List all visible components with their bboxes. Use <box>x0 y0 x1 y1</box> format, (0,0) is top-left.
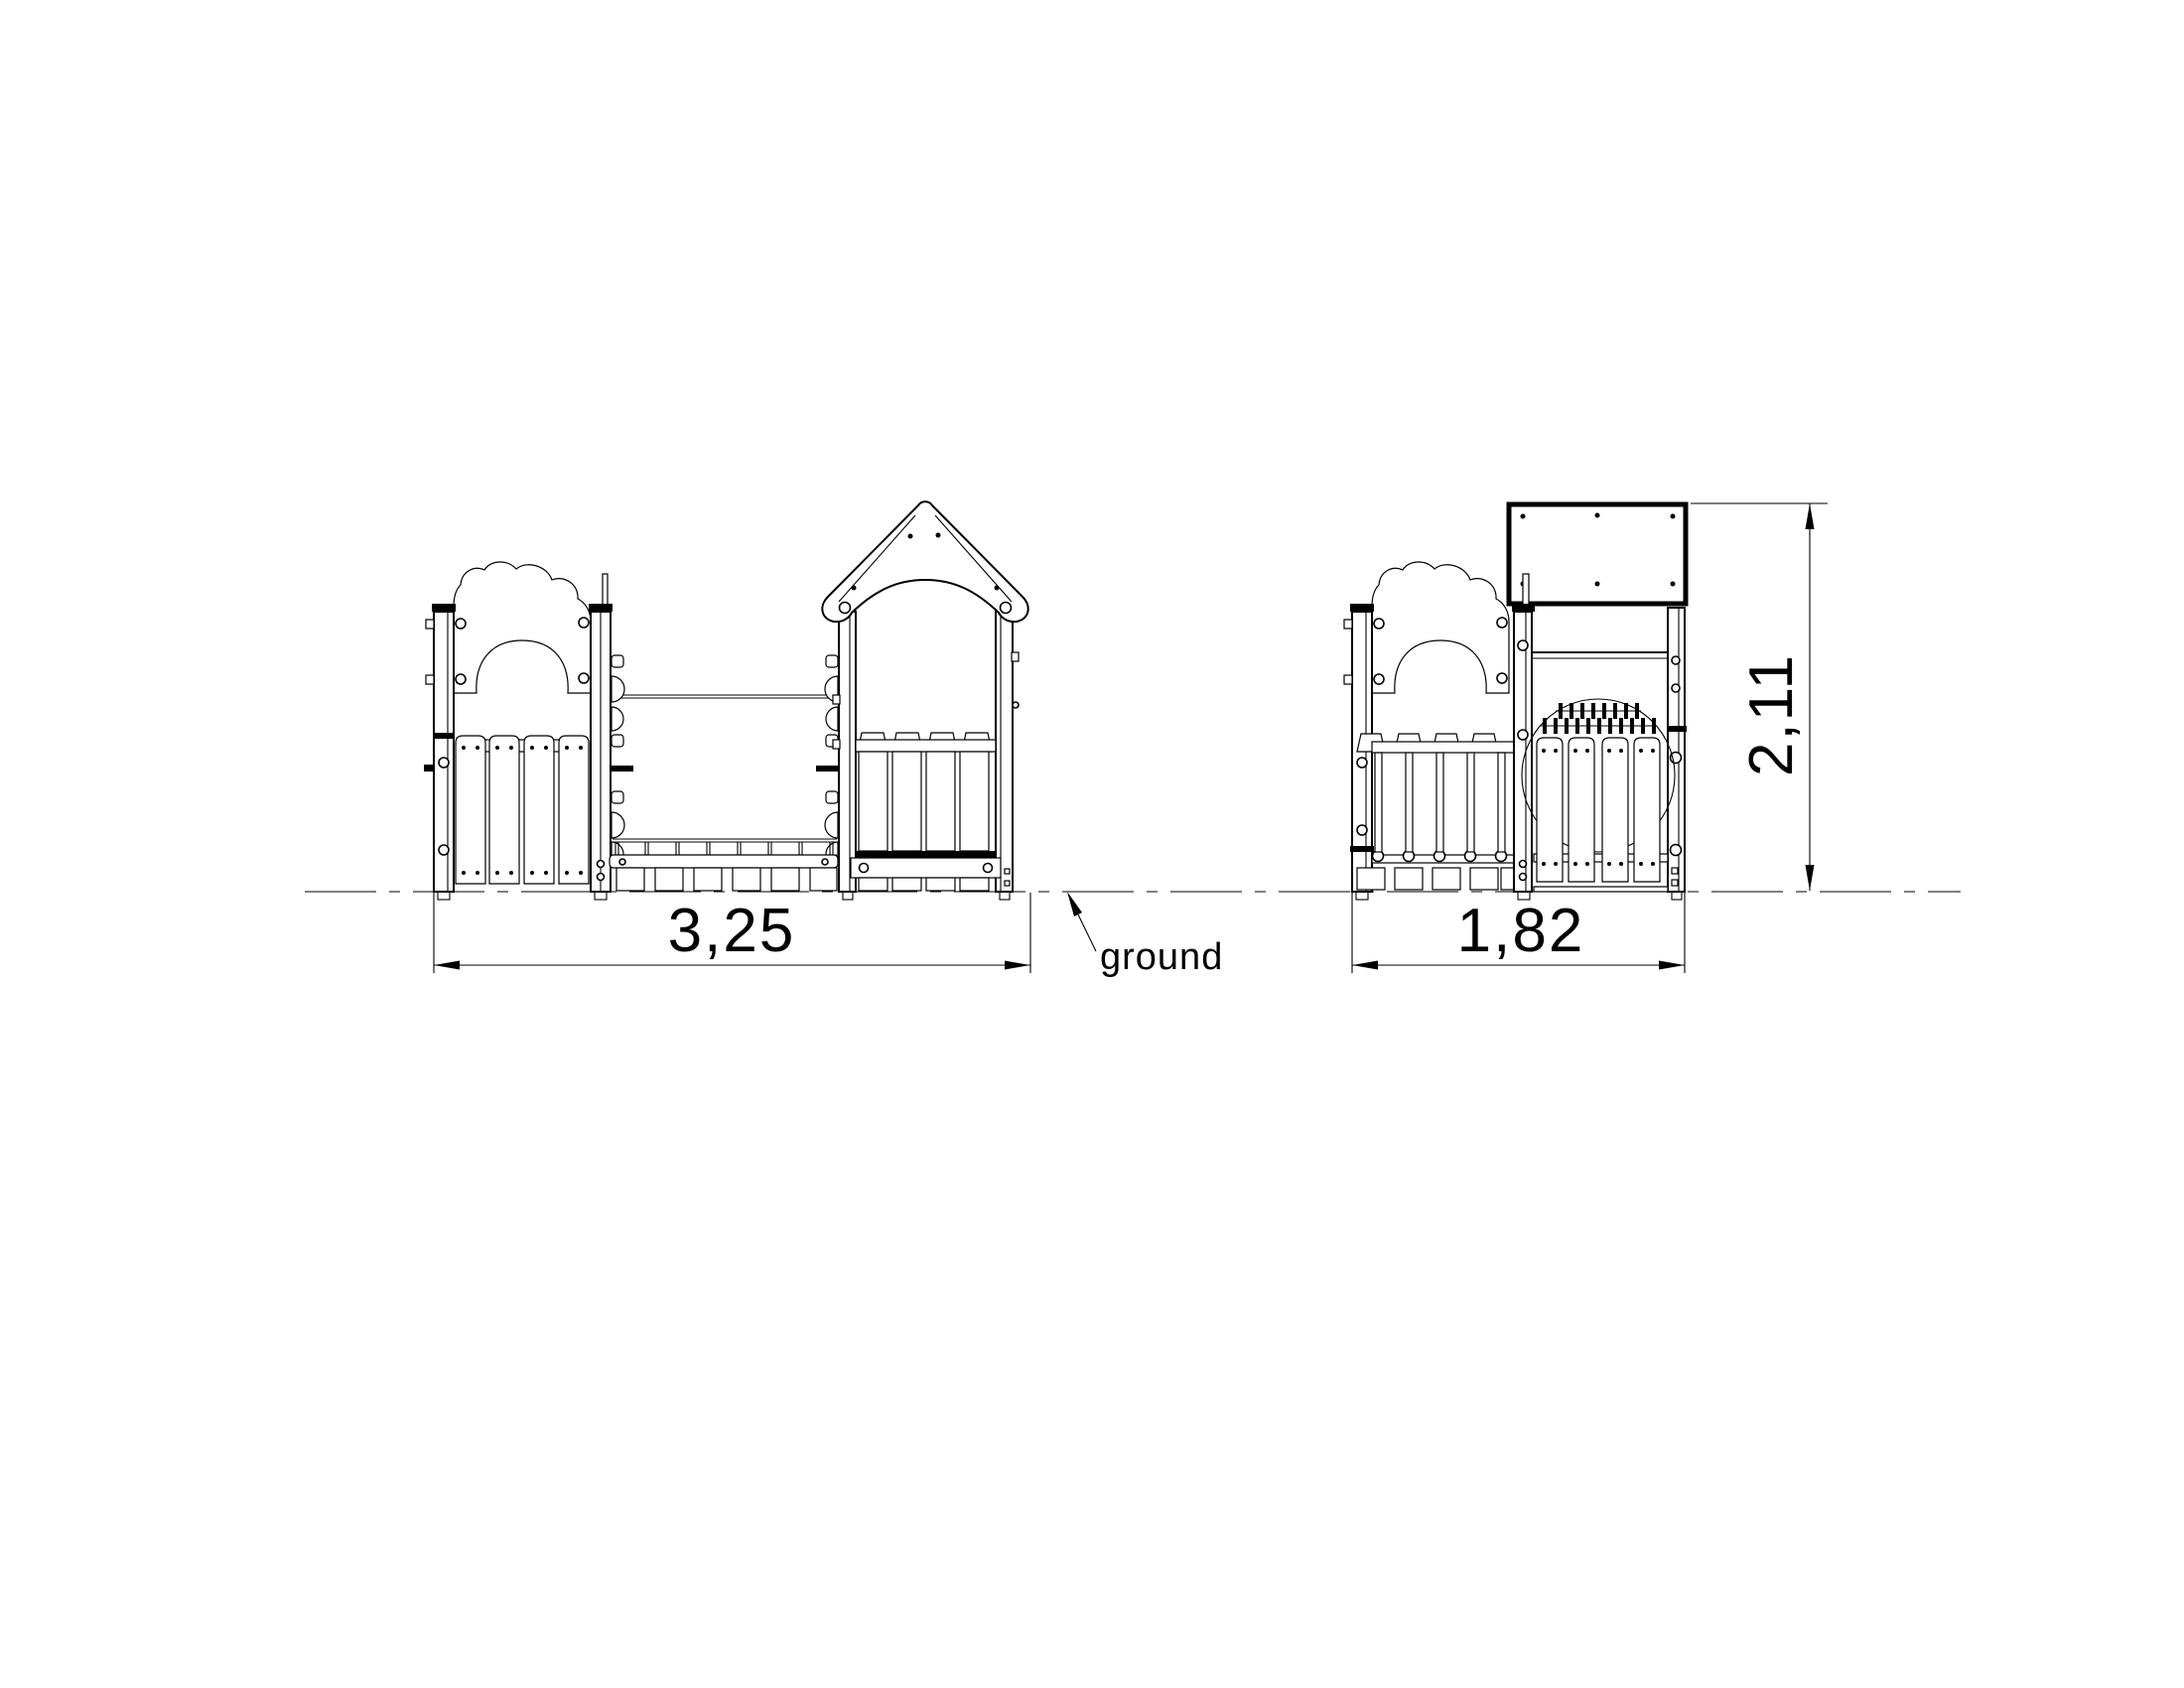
overall-height-value: 2,11 <box>1737 653 1806 776</box>
front-elevation-view <box>424 501 1028 900</box>
deck-bearer <box>610 855 838 868</box>
ground-label-text: ground <box>1100 936 1223 978</box>
side-elevation-view <box>1344 504 1687 900</box>
arrowhead-bottom <box>1806 865 1815 891</box>
picket <box>1537 738 1563 882</box>
tower-gable-roof <box>822 501 1027 622</box>
deck-lower-blocks <box>616 868 837 891</box>
net-strands <box>1543 703 1656 734</box>
arrowhead-right <box>1659 961 1685 970</box>
side-top-rail <box>1532 652 1668 658</box>
front-width-value: 3,25 <box>668 897 796 965</box>
dimension-side-width: 1,82 <box>1352 893 1685 973</box>
dimension-overall-height: 2,11 <box>1691 503 1828 891</box>
side-width-value: 1,82 <box>1457 897 1585 965</box>
picket <box>1634 738 1660 882</box>
ground-label: ground <box>1067 892 1223 978</box>
tower-fence-top-rail <box>856 740 996 752</box>
picket <box>456 736 485 884</box>
side-pickets <box>1534 738 1668 892</box>
side-middle-post <box>1512 574 1535 900</box>
tower-section <box>822 501 1027 900</box>
bridge-brackets-left <box>612 655 633 866</box>
front-left-post <box>424 604 456 900</box>
dimension-front-width: 3,25 <box>434 893 1030 973</box>
tower-fence <box>851 733 1001 891</box>
deck-slat-joints <box>615 842 833 855</box>
tower-fence-dark-rail <box>856 851 996 858</box>
arrowhead-left <box>1352 961 1378 970</box>
bridge-deck <box>610 839 838 891</box>
side-fence-balusters <box>1375 753 1505 852</box>
arrowhead-right <box>1005 961 1030 970</box>
bridge-brackets-right <box>816 655 838 866</box>
post-cap <box>1512 604 1535 612</box>
roof-side-panel <box>1509 504 1686 604</box>
leader-arrowhead <box>1067 892 1082 916</box>
drawing-page: 3,25 1,82 2,11 ground <box>0 0 2184 1688</box>
picket <box>559 736 589 884</box>
post-cap <box>432 604 456 612</box>
tower-kick-board <box>851 858 1001 878</box>
cloud-panel-front <box>454 562 591 693</box>
front-second-post <box>589 574 613 900</box>
arrowhead-left <box>434 961 460 970</box>
front-picket-fence <box>456 736 589 884</box>
picket <box>859 752 887 851</box>
side-fence <box>1357 734 1514 890</box>
picket <box>489 736 519 884</box>
picket <box>524 736 554 884</box>
arrowhead-top <box>1806 503 1815 529</box>
picket <box>1569 738 1594 882</box>
post-cap <box>589 604 613 612</box>
post-cap <box>1350 604 1374 612</box>
tower-right-post <box>996 612 1019 900</box>
leader-line <box>1078 914 1096 951</box>
bridge-section <box>610 655 838 891</box>
picket <box>926 752 955 851</box>
side-fence-stubs <box>1357 868 1514 890</box>
picket <box>1602 738 1628 882</box>
side-right-post <box>1667 608 1687 900</box>
cloud-panel-side <box>1372 562 1509 693</box>
picket <box>960 752 989 851</box>
side-fence-top-rail <box>1372 742 1514 753</box>
playground-technical-drawing: 3,25 1,82 2,11 ground <box>0 0 2184 1688</box>
picket <box>892 752 921 851</box>
